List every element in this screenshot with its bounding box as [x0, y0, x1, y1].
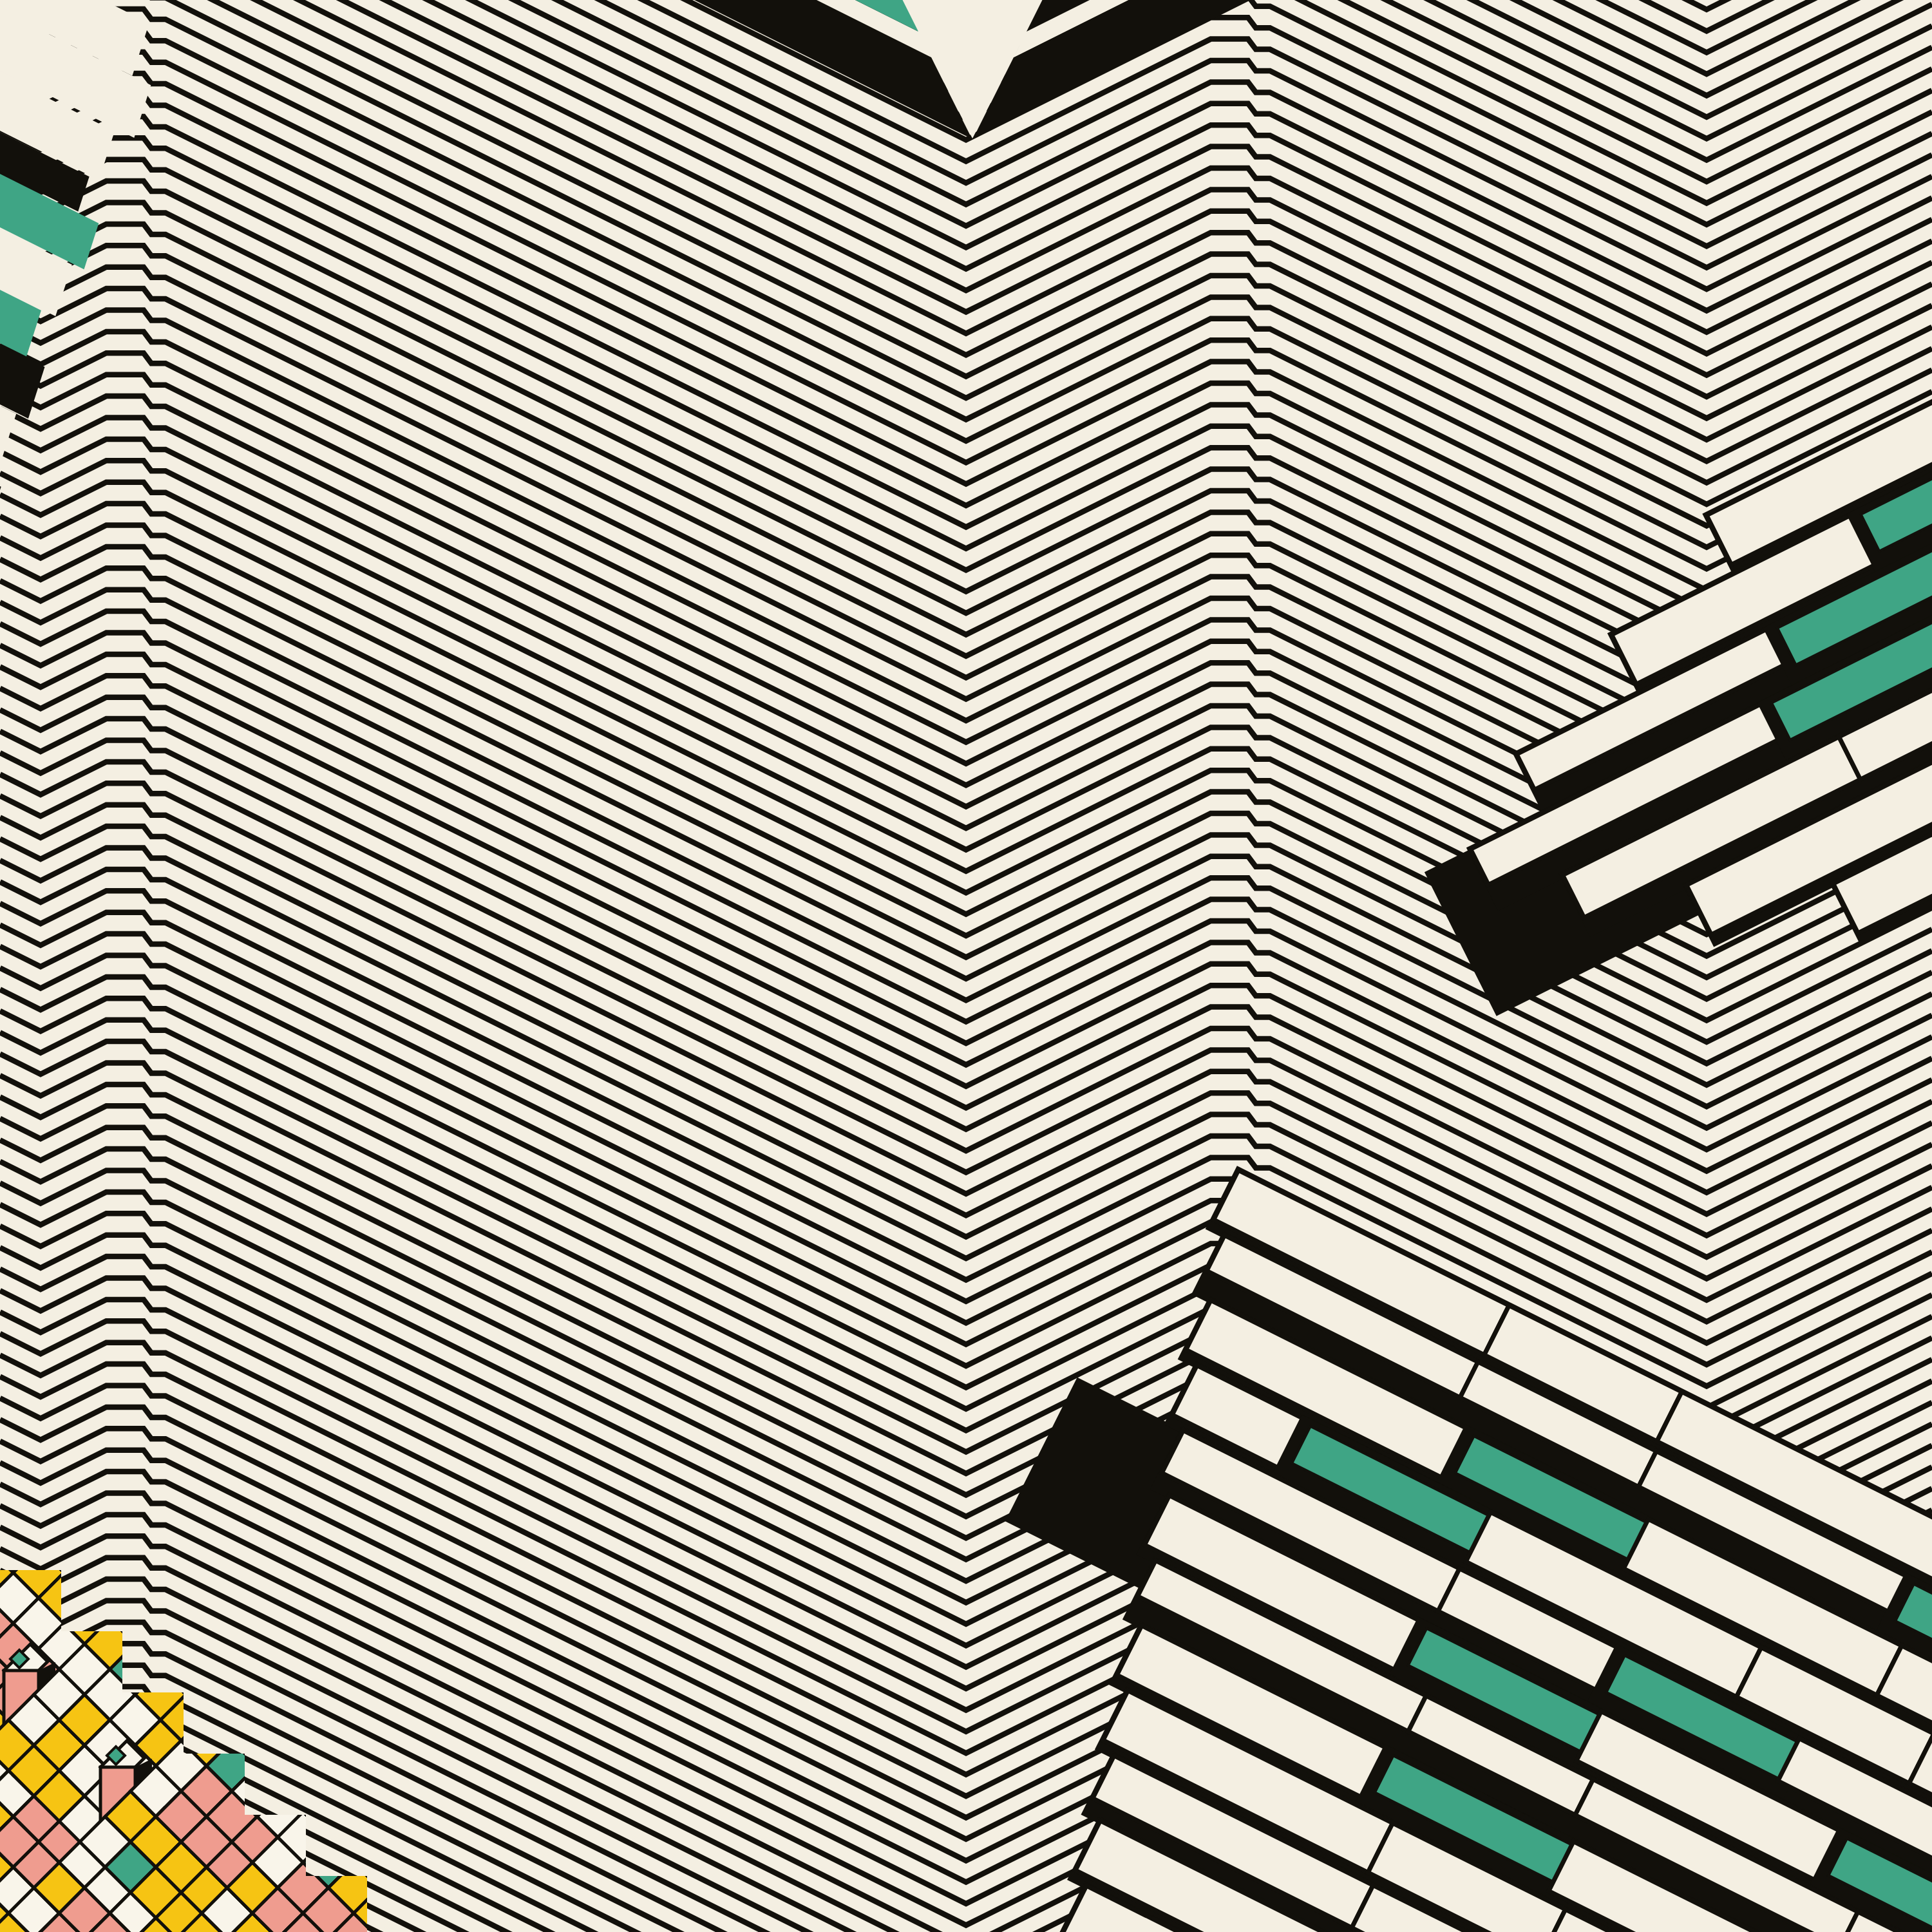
- artwork-canvas: [0, 0, 1932, 1932]
- generative-artwork: [0, 0, 1932, 1932]
